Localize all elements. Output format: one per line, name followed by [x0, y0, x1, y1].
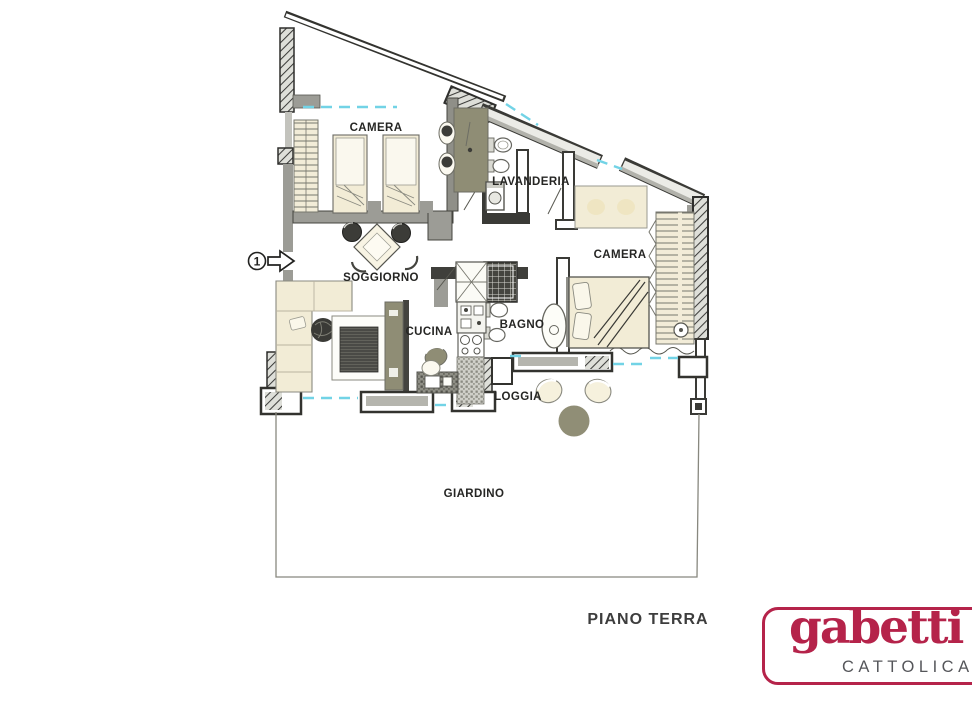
desk — [454, 108, 488, 192]
round-table — [559, 406, 590, 437]
shower — [484, 262, 517, 302]
toilet-icon — [488, 138, 512, 152]
desk-chair — [439, 122, 455, 144]
wardrobe — [294, 120, 318, 212]
brand-name: gabetti — [789, 600, 962, 655]
round-basin — [542, 304, 566, 348]
wall-right-foot-core — [695, 403, 702, 410]
entry-arrow-icon — [268, 251, 294, 271]
loggia-chair — [582, 377, 613, 406]
rug — [340, 327, 378, 372]
wall-parapet-center — [478, 110, 600, 166]
room-label-giardino: GIARDINO — [444, 488, 505, 500]
plant — [311, 318, 335, 342]
desk-chair — [439, 153, 455, 175]
room-label-loggia: LOGGIA — [494, 391, 542, 403]
dining-chair-arc — [352, 262, 366, 271]
door-swing — [548, 188, 561, 214]
window-line — [597, 160, 622, 169]
double-bed — [566, 277, 649, 348]
bed-foot-block — [420, 201, 433, 213]
bidet-icon — [488, 160, 509, 173]
wall-top-diagonal — [285, 14, 505, 99]
bed-foot-block — [368, 201, 381, 213]
single-bed — [333, 135, 367, 213]
entry-marker: 1 — [249, 251, 295, 271]
bed-top — [575, 186, 647, 228]
kitchen-stool — [422, 361, 440, 376]
toilet-icon — [484, 303, 508, 317]
brand-logo: gabetti CATTOLICA — [762, 607, 972, 685]
room-label-bagno: BAGNO — [500, 319, 545, 331]
wall-soggiorno-cucina — [403, 300, 409, 392]
room-label-camera-1: CAMERA — [350, 122, 403, 134]
wall-bagno-stub — [434, 279, 448, 307]
brand-location: CATTOLICA — [842, 658, 972, 677]
wall-bottom-stubs — [361, 353, 707, 412]
room-label-lavanderia: LAVANDERIA — [492, 176, 570, 188]
wall-camera2-foot — [556, 220, 577, 229]
wall-cucina-pillar — [492, 358, 512, 384]
wall-camera2-left-upper — [563, 152, 574, 224]
wall-camera1-step — [428, 211, 452, 240]
floor-label: PIANO TERRA — [587, 611, 708, 628]
entry-number: 1 — [254, 255, 261, 269]
dining-chair — [392, 224, 411, 243]
kitchen-counter — [456, 262, 487, 404]
dining-chair — [343, 223, 362, 242]
room-label-cucina: CUCINA — [405, 326, 452, 338]
dining-chair-arc — [405, 256, 417, 269]
room-label-camera-2: CAMERA — [594, 249, 647, 261]
tv-cabinet — [385, 302, 403, 390]
kitchen-sink-counter — [417, 372, 458, 393]
wall-lavanderia-bottom — [482, 213, 530, 224]
single-bed — [383, 135, 419, 213]
wall-right-hatched — [693, 197, 708, 339]
wardrobe — [649, 212, 694, 344]
room-label-soggiorno: SOGGIORNO — [343, 272, 419, 284]
